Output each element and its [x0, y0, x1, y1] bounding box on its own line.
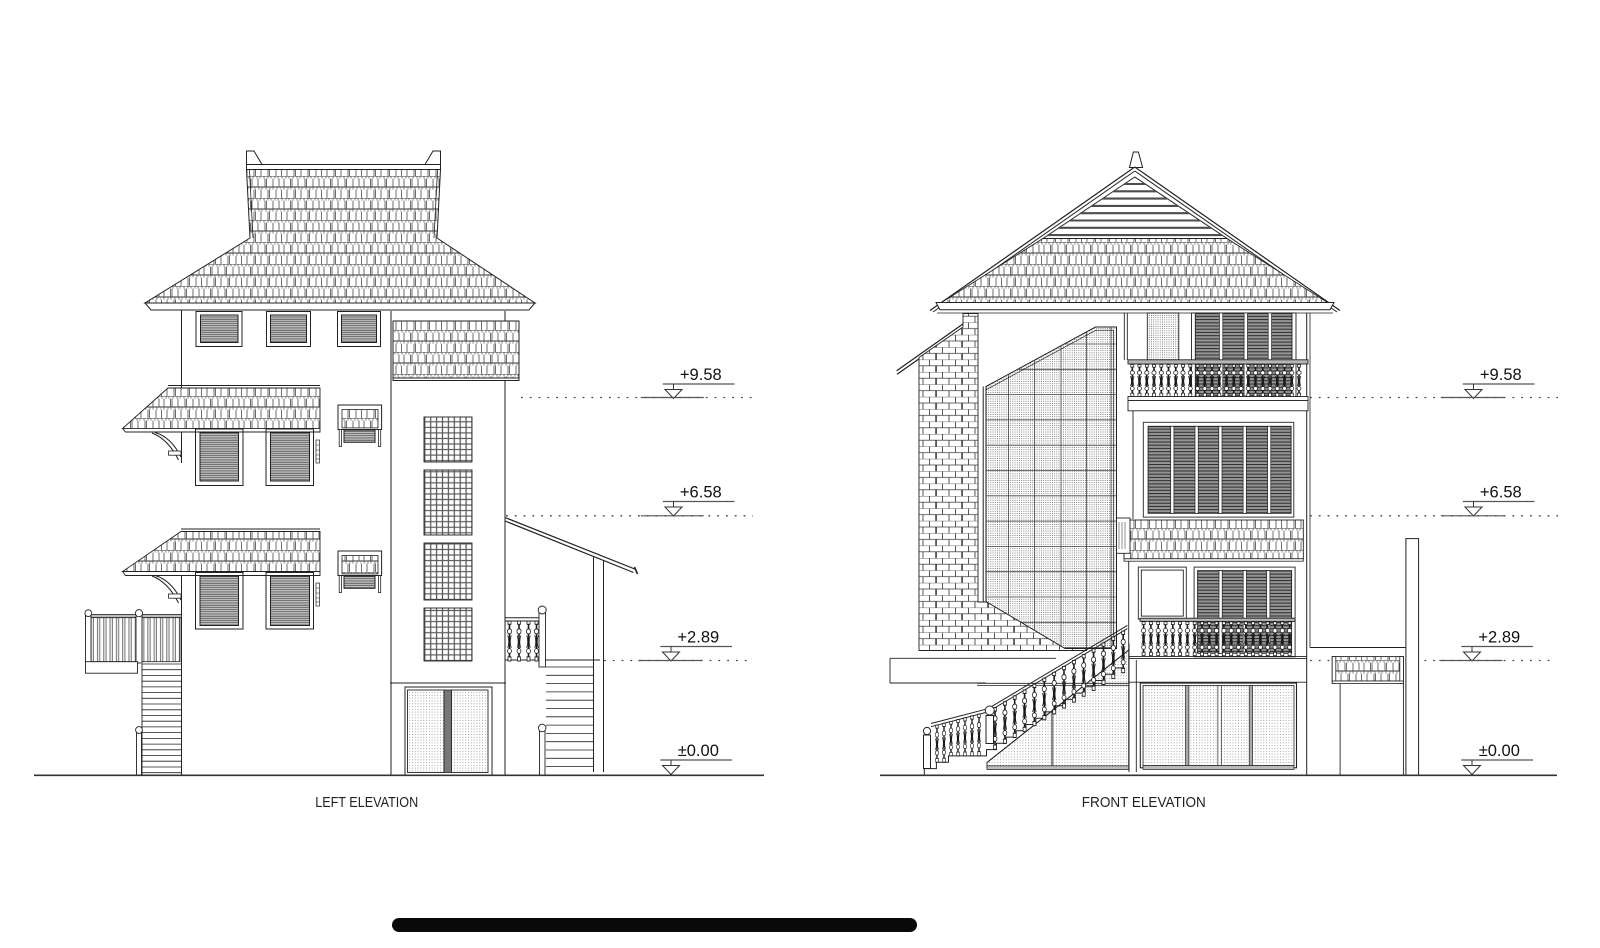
svg-text:±0.00: ±0.00 — [1479, 742, 1520, 760]
svg-text:LEFT ELEVATION: LEFT ELEVATION — [315, 794, 418, 811]
svg-text:FRONT ELEVATION: FRONT ELEVATION — [1082, 794, 1206, 811]
svg-text:+9.58: +9.58 — [1480, 366, 1522, 384]
svg-text:+2.89: +2.89 — [1478, 628, 1520, 646]
svg-text:+2.89: +2.89 — [677, 628, 719, 646]
svg-text:+6.58: +6.58 — [680, 483, 722, 501]
svg-text:±0.00: ±0.00 — [678, 742, 719, 760]
svg-text:+9.58: +9.58 — [680, 366, 722, 384]
svg-text:+6.58: +6.58 — [1480, 483, 1522, 501]
